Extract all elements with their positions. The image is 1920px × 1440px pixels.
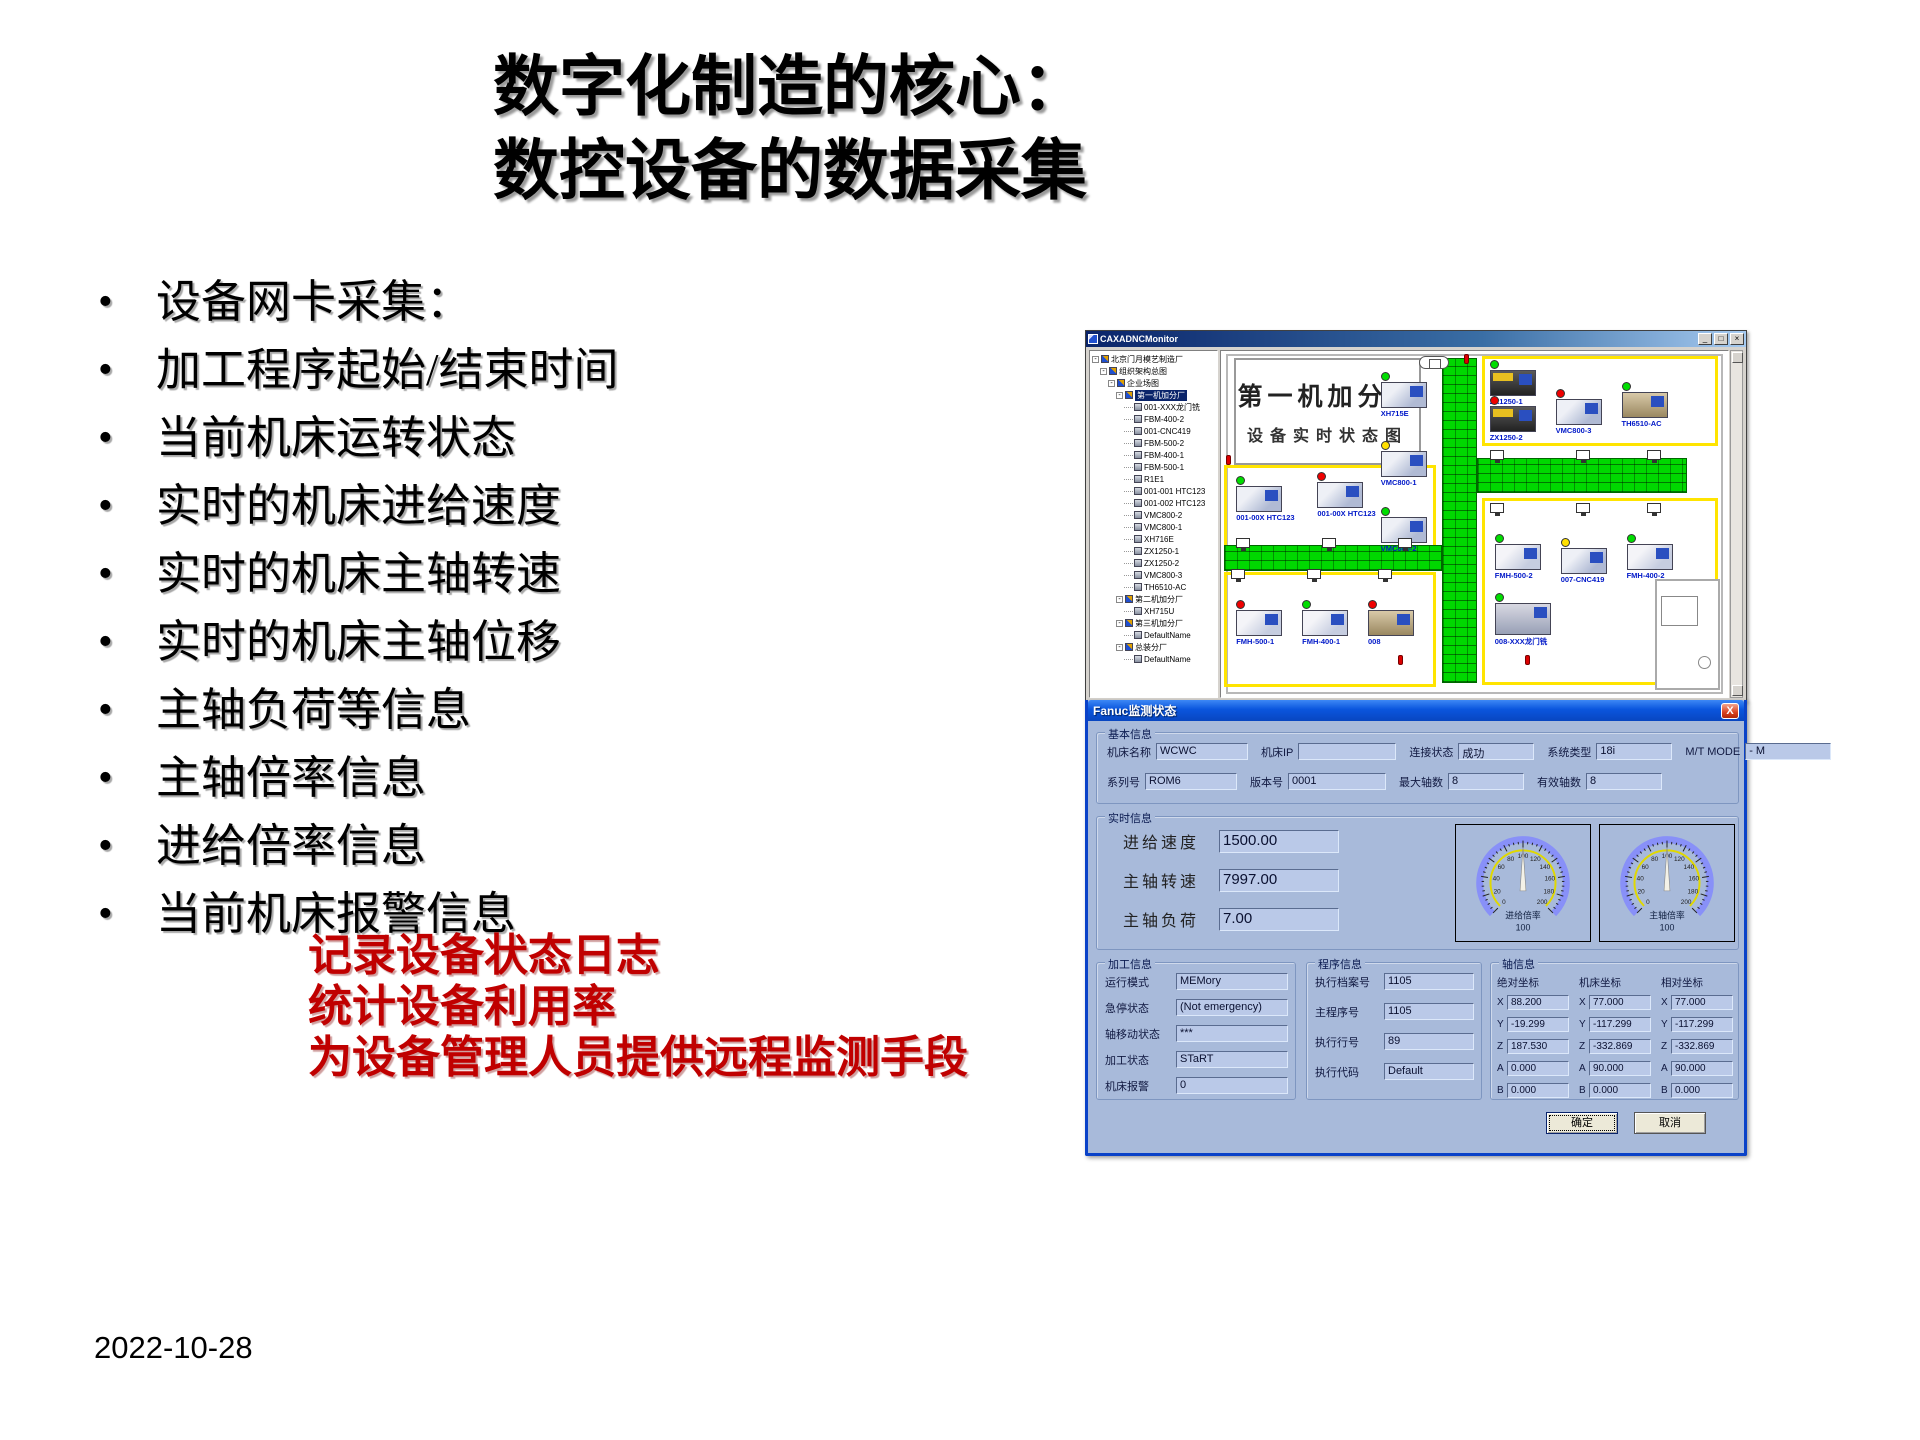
tree-item-label: 001-002 HTC123 (1144, 499, 1205, 508)
machine-label: ZX1250-2 (1490, 433, 1544, 442)
machining-field: 运行模式MEMory (1105, 973, 1288, 990)
machine-icon (1134, 523, 1142, 531)
machine-icon (1134, 427, 1142, 435)
svg-text:180: 180 (1543, 888, 1554, 895)
tree-item[interactable]: -第三机加分厂 (1090, 617, 1217, 629)
svg-text:200: 200 (1681, 899, 1692, 906)
field-label: 执行档案号 (1315, 974, 1379, 990)
machine-icon (1134, 439, 1142, 447)
dialog-titlebar[interactable]: Fanuc监测状态 X (1088, 700, 1744, 721)
group-machining-title: 加工信息 (1105, 956, 1155, 972)
axis-letter: B (1579, 1085, 1589, 1096)
machine-image (1236, 486, 1282, 512)
map-machine[interactable]: TH6510-AC (1622, 382, 1676, 428)
field-value[interactable]: 89 (1384, 1033, 1474, 1050)
group-program-title: 程序信息 (1315, 956, 1365, 972)
field-value[interactable]: 8 (1448, 773, 1524, 790)
field-value[interactable]: MEMory (1176, 973, 1288, 990)
svg-text:进给倍率: 进给倍率 (1505, 909, 1541, 920)
axis-value[interactable]: -117.299 (1671, 1017, 1733, 1032)
field-label: 有效轴数 (1537, 774, 1581, 790)
office-area (1655, 579, 1721, 690)
machine-image (1490, 370, 1536, 396)
tree-item-label: 001-CNC419 (1144, 427, 1191, 436)
tree-item-label: 第二机加分厂 (1135, 594, 1183, 605)
tree-branch-line (1124, 635, 1133, 636)
machine-icon (1134, 655, 1142, 663)
tree-item-label: 第三机加分厂 (1135, 618, 1183, 629)
tree-item-label: FBM-500-1 (1144, 463, 1184, 472)
field-value[interactable]: 7.00 (1219, 908, 1339, 931)
axis-value[interactable]: 0.000 (1507, 1083, 1569, 1098)
bullet-item: 进给倍率信息 (92, 812, 992, 880)
map-machine[interactable]: VMC800-3 (1556, 389, 1610, 435)
axis-letter: Y (1497, 1019, 1507, 1030)
axis-row: B0.000 (1579, 1083, 1659, 1098)
field-label: 系列号 (1107, 774, 1140, 790)
bullet-item: 加工程序起始/结束时间 (92, 336, 992, 404)
realtime-field: 主轴负荷7.00 (1123, 907, 1339, 931)
tree-item[interactable]: XH716E (1090, 533, 1217, 545)
factory-icon (1125, 595, 1133, 603)
field-label: 轴移动状态 (1105, 1026, 1171, 1042)
field-value[interactable]: 0 (1176, 1077, 1288, 1094)
status-light-green (1495, 593, 1504, 602)
monitor-icon (1647, 503, 1661, 513)
bullet-item: 当前机床运转状态 (92, 404, 992, 472)
fire-extinguisher-icon (1525, 655, 1530, 665)
tree-branch-line (1124, 407, 1133, 408)
tree-expand-icon[interactable]: - (1116, 596, 1123, 603)
dialog-title: Fanuc监测状态 (1093, 702, 1721, 719)
realtime-fields: 进给速度1500.00主轴转速7997.00主轴负荷7.00 (1123, 829, 1339, 946)
highlight-line: 统计设备利用率 (308, 981, 968, 1032)
axis-value[interactable]: 77.000 (1671, 995, 1733, 1010)
close-button[interactable]: × (1730, 333, 1744, 345)
axis-letter: B (1497, 1085, 1507, 1096)
field-value[interactable]: 0001 (1288, 773, 1386, 790)
field-value[interactable]: 成功 (1458, 743, 1534, 760)
axis-letter: A (1579, 1063, 1589, 1074)
axis-letter: X (1661, 997, 1671, 1008)
machine-label: FMH-400-2 (1627, 571, 1681, 580)
field-value[interactable]: 18i (1596, 743, 1672, 760)
machine-image (1236, 610, 1282, 636)
machine-image (1302, 610, 1348, 636)
realtime-field: 进给速度1500.00 (1123, 829, 1339, 853)
machine-label: VMC800-3 (1556, 426, 1610, 435)
tree-item[interactable]: 001-XXX龙门铣 (1090, 401, 1217, 413)
program-field: 执行档案号1105 (1315, 973, 1474, 990)
bullet-item: 主轴倍率信息 (92, 744, 992, 812)
svg-text:40: 40 (1493, 876, 1501, 883)
axis-column-header: 相对坐标 (1661, 975, 1741, 990)
field-label: 执行行号 (1315, 1034, 1379, 1050)
field-label: 机床名称 (1107, 744, 1151, 760)
machine-label: VMC800-1 (1381, 478, 1435, 487)
axis-column: 绝对坐标X88.200Y-19.299Z187.530A0.000B0.000 (1497, 975, 1577, 1105)
tree-item[interactable]: 001-002 HTC123 (1090, 497, 1217, 509)
cancel-button[interactable]: 取消 (1634, 1112, 1706, 1134)
machining-fields: 运行模式MEMory急停状态(Not emergency)轴移动状态***加工状… (1105, 973, 1288, 1103)
slide-title: 数字化制造的核心： 数控设备的数据采集 (260, 46, 1320, 215)
axis-value[interactable]: 0.000 (1671, 1083, 1733, 1098)
monitor-icon (1398, 538, 1412, 548)
tree-expand-icon[interactable]: - (1092, 356, 1099, 363)
axis-row: Y-19.299 (1497, 1017, 1577, 1032)
factory-icon (1101, 355, 1109, 363)
axis-value[interactable]: 90.000 (1589, 1061, 1651, 1076)
machine-icon (1134, 607, 1142, 615)
axis-row: B0.000 (1497, 1083, 1577, 1098)
bullet-item: 实时的机床主轴转速 (92, 540, 992, 608)
machine-icon (1134, 475, 1142, 483)
field-label: 系统类型 (1547, 744, 1591, 760)
field-label: 最大轴数 (1399, 774, 1443, 790)
tree-branch-line (1124, 443, 1133, 444)
axis-column: 机床坐标X77.000Y-117.299Z-332.869A90.000B0.0… (1579, 975, 1659, 1105)
slide-title-line2: 数控设备的数据采集 (260, 130, 1320, 214)
tree-item-label: 企业场图 (1127, 378, 1159, 389)
machine-icon (1134, 463, 1142, 471)
tree-item[interactable]: R1E1 (1090, 473, 1217, 485)
monitor-icon (1576, 503, 1590, 513)
status-light-red (1490, 396, 1499, 405)
svg-text:100: 100 (1516, 922, 1531, 932)
axis-row: A0.000 (1497, 1061, 1577, 1076)
tree-item[interactable]: 001-CNC419 (1090, 425, 1217, 437)
tree-item[interactable]: 001-001 HTC123 (1090, 485, 1217, 497)
group-basic-info: 基本信息 机床名称WCWC机床IP连接状态成功系统类型18iM/T MODE- … (1096, 732, 1739, 804)
dialog-close-icon[interactable]: X (1721, 703, 1739, 719)
tree-item-label: VMC800-3 (1144, 571, 1182, 580)
bullet-list: 设备网卡采集：加工程序起始/结束时间当前机床运转状态实时的机床进给速度实时的机床… (92, 268, 992, 948)
map-machine[interactable]: 008-XXX龙门铣 (1495, 593, 1549, 647)
axis-letter: A (1497, 1063, 1507, 1074)
field-value[interactable]: 1105 (1384, 1003, 1474, 1020)
highlight-line: 为设备管理人员提供远程监测手段 (308, 1032, 968, 1083)
program-fields: 执行档案号1105主程序号1105执行行号89执行代码Default (1315, 973, 1474, 1093)
machine-label: FMH-500-2 (1495, 571, 1549, 580)
form-field: M/T MODE- M (1685, 743, 1831, 760)
tree-item-label: 总装分厂 (1135, 642, 1167, 653)
bullet-item: 实时的机床主轴位移 (92, 608, 992, 676)
group-realtime-info: 实时信息 进给速度1500.00主轴转速7997.00主轴负荷7.00 0204… (1096, 816, 1739, 950)
field-value[interactable]: WCWC (1156, 743, 1248, 760)
machine-label: FMH-400-1 (1302, 637, 1356, 646)
tree-expand-icon[interactable]: - (1116, 620, 1123, 627)
axis-value[interactable]: -332.869 (1671, 1039, 1733, 1054)
axis-row: Z-332.869 (1579, 1039, 1659, 1054)
tree-item[interactable]: XH715U (1090, 605, 1217, 617)
group-axis-info: 轴信息 绝对坐标X88.200Y-19.299Z187.530A0.000B0.… (1490, 962, 1739, 1100)
tree-item-label: DefaultName (1144, 655, 1191, 664)
axis-row: A90.000 (1579, 1061, 1659, 1076)
svg-text:140: 140 (1540, 864, 1551, 871)
axis-value[interactable]: 0.000 (1589, 1083, 1651, 1098)
tree-item[interactable]: -第二机加分厂 (1090, 593, 1217, 605)
field-label: 主程序号 (1315, 1004, 1379, 1020)
field-value[interactable]: 1500.00 (1219, 830, 1339, 853)
tree-item[interactable]: FBM-400-2 (1090, 413, 1217, 425)
axis-row: B0.000 (1661, 1083, 1741, 1098)
machining-field: 加工状态STaRT (1105, 1051, 1288, 1068)
form-field: 机床名称WCWC (1107, 743, 1248, 760)
svg-text:0: 0 (1502, 899, 1506, 906)
axis-value[interactable]: 0.000 (1507, 1061, 1569, 1076)
ok-button[interactable]: 确定 (1546, 1112, 1618, 1134)
form-field: 最大轴数8 (1399, 773, 1524, 790)
basic-info-row2: 系列号ROM6版本号0001最大轴数8有效轴数8 (1107, 773, 1732, 790)
axis-row: Z-332.869 (1661, 1039, 1741, 1054)
field-label: 主轴转速 (1123, 868, 1219, 892)
tree-item-label: DefaultName (1144, 631, 1191, 640)
tree-item[interactable]: VMC800-3 (1090, 569, 1217, 581)
tree-branch-line (1124, 587, 1133, 588)
field-value[interactable]: 7997.00 (1219, 869, 1339, 892)
field-label: 机床IP (1261, 744, 1293, 760)
tree-item-label: 北京门月模艺制造厂 (1111, 354, 1183, 365)
svg-text:120: 120 (1674, 856, 1685, 863)
axis-value[interactable]: -332.869 (1589, 1039, 1651, 1054)
tree-item-label: FBM-400-1 (1144, 451, 1184, 460)
axis-value[interactable]: 77.000 (1589, 995, 1651, 1010)
axis-column: 相对坐标X77.000Y-117.299Z-332.869A90.000B0.0… (1661, 975, 1741, 1105)
map-machine[interactable]: 001-00X HTC123 (1236, 476, 1290, 522)
axis-value[interactable]: 88.200 (1507, 995, 1569, 1010)
field-value[interactable]: STaRT (1176, 1051, 1288, 1068)
axis-value[interactable]: -117.299 (1589, 1017, 1651, 1032)
field-value[interactable]: (Not emergency) (1176, 999, 1288, 1016)
tree-item-label: 第一机加分厂 (1135, 390, 1187, 401)
tree-branch-line (1124, 659, 1133, 660)
monitor-icon (1490, 450, 1504, 460)
window-title: CAXADNCMonitor (1100, 334, 1696, 344)
tree-branch-line (1124, 515, 1133, 516)
form-field: 连接状态成功 (1409, 743, 1534, 760)
svg-text:160: 160 (1688, 876, 1699, 883)
cart-icon (1419, 356, 1449, 369)
monitor-icon (1307, 569, 1321, 579)
machine-icon (1134, 559, 1142, 567)
map-machine[interactable]: FMH-400-1 (1302, 600, 1356, 646)
program-field: 主程序号1105 (1315, 1003, 1474, 1020)
fire-extinguisher-icon (1226, 455, 1231, 465)
map-machine[interactable]: FMH-500-2 (1495, 534, 1549, 580)
tree-branch-line (1124, 479, 1133, 480)
axis-letter: A (1661, 1063, 1671, 1074)
monitor-icon (1490, 503, 1504, 513)
axis-table: 绝对坐标X88.200Y-19.299Z187.530A0.000B0.000机… (1493, 971, 1736, 1097)
map-machine[interactable]: XH715E (1381, 372, 1435, 418)
field-value[interactable]: *** (1176, 1025, 1288, 1042)
tree-item-label: ZX1250-2 (1144, 559, 1179, 568)
factory-icon (1117, 379, 1125, 387)
status-light-green (1490, 360, 1499, 369)
machine-label: 008-XXX龙门铣 (1495, 636, 1549, 647)
monitor-icon (1576, 450, 1590, 460)
group-realtime-title: 实时信息 (1105, 810, 1155, 826)
machine-image (1622, 392, 1668, 418)
svg-text:20: 20 (1494, 888, 1502, 895)
bullet-item: 设备网卡采集： (92, 268, 992, 336)
status-light-yellow (1561, 538, 1570, 547)
field-value[interactable]: 1105 (1384, 973, 1474, 990)
status-light-red (1556, 389, 1565, 398)
map-scrollbar[interactable] (1730, 350, 1743, 698)
machine-image (1556, 399, 1602, 425)
tree-item[interactable]: -第一机加分厂 (1090, 389, 1217, 401)
tree-branch-line (1124, 563, 1133, 564)
svg-text:80: 80 (1651, 856, 1659, 863)
field-label: 运行模式 (1105, 974, 1171, 990)
highlight-text-block: 记录设备状态日志统计设备利用率为设备管理人员提供远程监测手段 (308, 930, 968, 1083)
svg-text:160: 160 (1544, 876, 1555, 883)
field-value[interactable]: - M (1745, 743, 1831, 760)
maximize-button[interactable]: □ (1714, 333, 1728, 345)
tree-item[interactable]: FBM-400-1 (1090, 449, 1217, 461)
axis-value[interactable]: 187.530 (1507, 1039, 1569, 1054)
tree-item[interactable]: VMC800-2 (1090, 509, 1217, 521)
slide-title-line1: 数字化制造的核心： (260, 46, 1320, 130)
fire-extinguisher-icon (1464, 354, 1469, 364)
axis-value[interactable]: -19.299 (1507, 1017, 1569, 1032)
svg-text:40: 40 (1637, 876, 1645, 883)
axis-column-header: 机床坐标 (1579, 975, 1659, 990)
tree-item-label: XH715U (1144, 607, 1174, 616)
svg-text:80: 80 (1507, 856, 1515, 863)
axis-value[interactable]: 90.000 (1671, 1061, 1733, 1076)
map-machine[interactable]: 001-00X HTC123 (1317, 472, 1371, 518)
axis-row: X88.200 (1497, 995, 1577, 1010)
tree-item[interactable]: FBM-500-2 (1090, 437, 1217, 449)
app-icon (1088, 334, 1098, 344)
conveyor-vertical (1442, 358, 1477, 683)
form-field: 机床IP (1261, 743, 1396, 760)
map-machine[interactable]: FMH-400-2 (1627, 534, 1681, 580)
machine-image (1495, 603, 1551, 635)
device-tree-panel: -北京门月模艺制造厂-组织架构总图-企业场图-第一机加分厂001-XXX龙门铣F… (1089, 350, 1218, 698)
tree-branch-line (1124, 491, 1133, 492)
map-machine[interactable]: ZX1250-2 (1490, 396, 1544, 442)
map-machine[interactable]: FMH-500-1 (1236, 600, 1290, 646)
tree-item[interactable]: -组织架构总图 (1090, 365, 1217, 377)
machine-label: 007-CNC419 (1561, 575, 1615, 584)
factory-icon (1125, 391, 1133, 399)
tree-expand-icon[interactable]: - (1108, 380, 1115, 387)
tree-expand-icon[interactable]: - (1116, 392, 1123, 399)
map-machine[interactable]: 008 (1368, 600, 1422, 646)
tree-item[interactable]: DefaultName (1090, 629, 1217, 641)
axis-letter: Y (1579, 1019, 1589, 1030)
monitor-icon (1236, 538, 1250, 548)
monitor-icon (1378, 569, 1392, 579)
tree-item-label: FBM-400-2 (1144, 415, 1184, 424)
axis-column-header: 绝对坐标 (1497, 975, 1577, 990)
field-label: 执行代码 (1315, 1064, 1379, 1080)
field-label: 连接状态 (1409, 744, 1453, 760)
axis-letter: Z (1497, 1041, 1507, 1052)
form-field: 系列号ROM6 (1107, 773, 1237, 790)
machine-label: FMH-500-1 (1236, 637, 1290, 646)
tree-item[interactable]: TH6510-AC (1090, 581, 1217, 593)
window-titlebar[interactable]: CAXADNCMonitor _ □ × (1086, 331, 1746, 347)
tree-item[interactable]: ZX1250-1 (1090, 545, 1217, 557)
tree-item[interactable]: VMC800-1 (1090, 521, 1217, 533)
field-label: M/T MODE (1685, 746, 1740, 758)
field-value[interactable]: 8 (1586, 773, 1662, 790)
tree-item[interactable]: FBM-500-1 (1090, 461, 1217, 473)
machine-image (1381, 451, 1427, 477)
factory-icon (1109, 367, 1117, 375)
tree-branch-line (1124, 539, 1133, 540)
machine-icon (1134, 415, 1142, 423)
tree-expand-icon[interactable]: - (1100, 368, 1107, 375)
map-machine[interactable]: 007-CNC419 (1561, 538, 1615, 584)
axis-letter: X (1579, 997, 1589, 1008)
axis-letter: B (1661, 1085, 1671, 1096)
monitor-icon (1231, 569, 1245, 579)
machine-icon (1134, 631, 1142, 639)
svg-text:140: 140 (1684, 864, 1695, 871)
machining-field: 急停状态(Not emergency) (1105, 999, 1288, 1016)
tree-item[interactable]: -总装分厂 (1090, 641, 1217, 653)
form-field: 有效轴数8 (1537, 773, 1662, 790)
field-value[interactable]: ROM6 (1145, 773, 1237, 790)
fire-extinguisher-icon (1398, 655, 1403, 665)
gauge-panel: 020406080100120140160180200进给倍率100 (1455, 824, 1591, 942)
program-field: 执行行号89 (1315, 1033, 1474, 1050)
tree-item-label: R1E1 (1144, 475, 1164, 484)
tree-branch-line (1124, 503, 1133, 504)
machine-image (1381, 382, 1427, 408)
bullet-item: 主轴负荷等信息 (92, 676, 992, 744)
svg-text:180: 180 (1687, 888, 1698, 895)
machine-icon (1134, 535, 1142, 543)
tree-item[interactable]: DefaultName (1090, 653, 1217, 665)
svg-text:100: 100 (1660, 922, 1675, 932)
tree-branch-line (1124, 467, 1133, 468)
axis-row: Y-117.299 (1579, 1017, 1659, 1032)
machine-image (1368, 610, 1414, 636)
axis-row: X77.000 (1661, 995, 1741, 1010)
machining-field: 轴移动状态*** (1105, 1025, 1288, 1042)
status-light-yellow (1381, 441, 1390, 450)
tree-item[interactable]: ZX1250-2 (1090, 557, 1217, 569)
axis-row: A90.000 (1661, 1061, 1741, 1076)
tree-expand-icon[interactable]: - (1116, 644, 1123, 651)
machine-image (1317, 482, 1363, 508)
status-light-red (1368, 600, 1377, 609)
machine-image (1495, 544, 1541, 570)
field-label: 机床报警 (1105, 1078, 1171, 1094)
gauge-dial: 020406080100120140160180200进给倍率100 (1456, 825, 1590, 941)
form-field: 版本号0001 (1250, 773, 1386, 790)
machine-icon (1134, 403, 1142, 411)
machine-icon (1134, 499, 1142, 507)
field-value[interactable] (1298, 743, 1396, 760)
tree-item[interactable]: -企业场图 (1090, 377, 1217, 389)
axis-row: Z187.530 (1497, 1039, 1577, 1054)
tree-item[interactable]: -北京门月模艺制造厂 (1090, 353, 1217, 365)
map-machine[interactable]: VMC800-1 (1381, 441, 1435, 487)
group-machining-info: 加工信息 运行模式MEMory急停状态(Not emergency)轴移动状态*… (1096, 962, 1296, 1100)
machine-label: TH6510-AC (1622, 419, 1676, 428)
machine-icon (1134, 583, 1142, 591)
minimize-button[interactable]: _ (1698, 333, 1712, 345)
field-value[interactable]: Default (1384, 1063, 1474, 1080)
field-label: 加工状态 (1105, 1052, 1171, 1068)
